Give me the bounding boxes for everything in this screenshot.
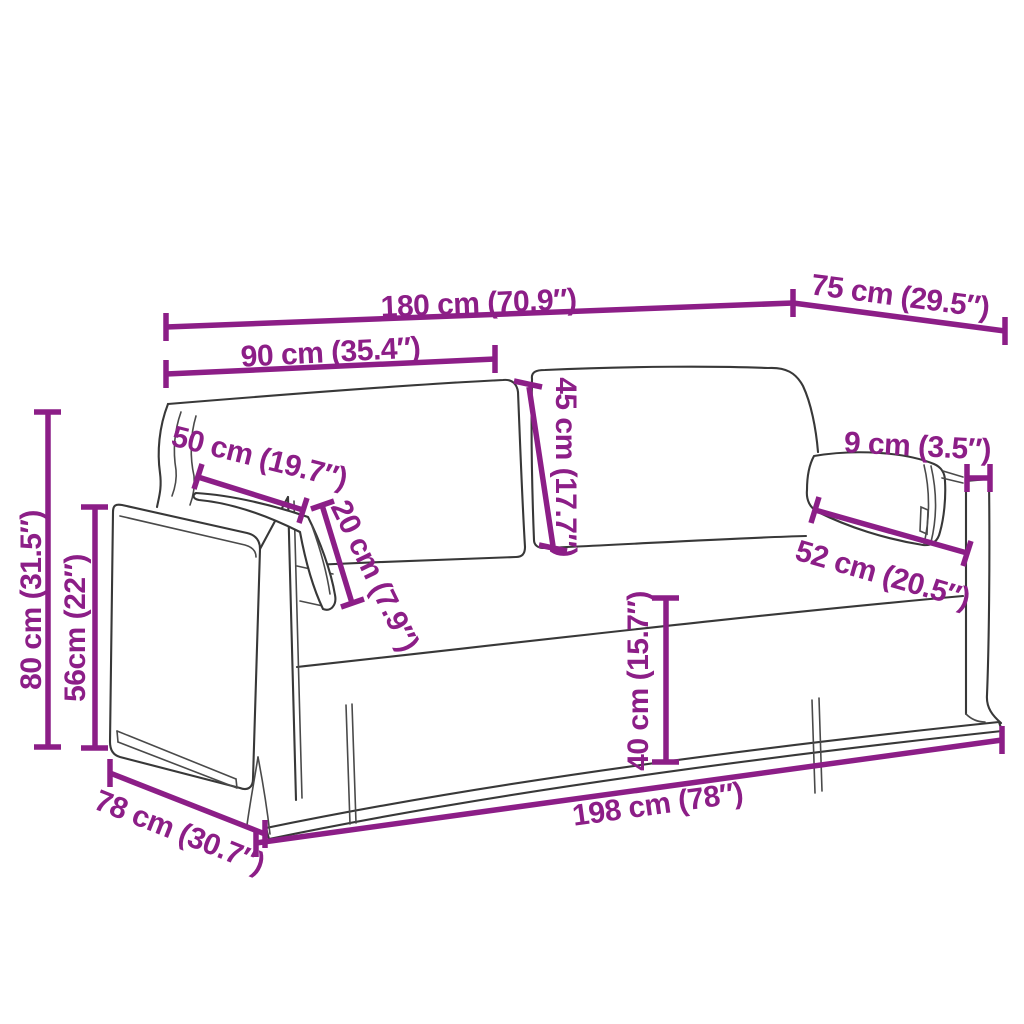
dimension-label-back-cushion-height: 45 cm (17.7″) — [549, 377, 582, 557]
skirt-pleat — [346, 705, 350, 824]
diagram-canvas: 180 cm (70.9″) 75 cm (29.5″) 90 cm (35.4… — [0, 0, 1024, 1024]
sofa-dimension-diagram: 180 cm (70.9″) 75 cm (29.5″) 90 cm (35.4… — [0, 0, 1024, 1024]
dimension-line-side-panel-thickness — [967, 464, 990, 492]
dimension-label-arm-height: 56cm (22″) — [59, 554, 92, 702]
dimension-label-back-cushion-width: 90 cm (35.4″) — [240, 331, 421, 373]
dimension-line-seat-height — [652, 598, 679, 762]
right-side-panel — [966, 479, 1001, 723]
dimension-label-overall-height: 80 cm (31.5″) — [15, 510, 48, 690]
dimension-label-seat-height: 40 cm (15.7″) — [622, 591, 655, 771]
skirt-pleat — [812, 700, 815, 793]
dimension-label-back-width: 180 cm (70.9″) — [380, 283, 577, 324]
